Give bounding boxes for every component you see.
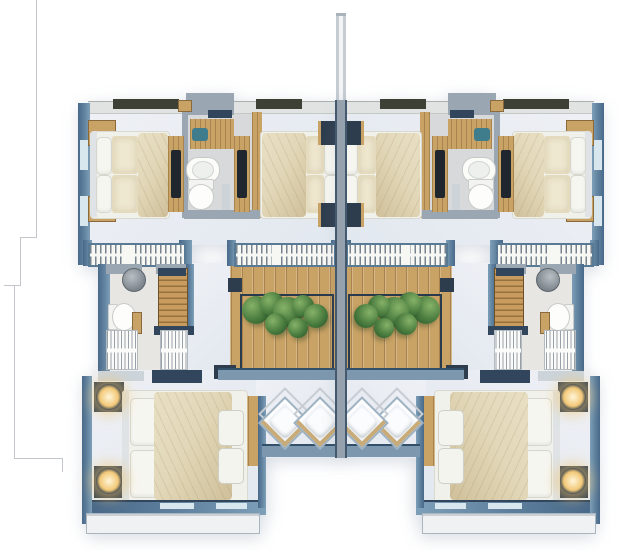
outer-wall-bottom [82,376,92,524]
bedroom-wall-top [98,371,144,381]
ac-unit [440,278,454,292]
vanity-basin [192,128,208,141]
balcony-railing [234,243,336,267]
folded-blanket [438,448,464,484]
dressing-stool [536,268,560,292]
wardrobe-door [435,150,445,198]
bed-duvet [138,133,168,217]
sideboard [152,370,202,383]
bed-duvet [376,133,420,217]
nightstand-lamp [96,384,122,410]
wardrobe-rack [544,330,576,370]
sideboard [480,370,530,383]
bed-duvet [154,392,232,500]
window [80,140,88,170]
parapet-wood-block [178,100,192,112]
unit-right [341,0,640,551]
staircase [494,268,524,330]
toilet-bowl [468,184,494,210]
window [216,503,247,509]
parapet-planter [256,99,302,109]
wardrobe-door [171,150,181,198]
central-party-wall [335,100,347,458]
vanity-basin [474,128,490,141]
bed-duvet [514,133,544,217]
sink-basin [192,161,214,179]
balcony-edge-rail [341,368,464,380]
unit-left [0,0,341,551]
planter-plant [265,313,287,335]
parapet-wood-block [490,100,504,112]
parapet-planter [503,99,569,109]
bed-pillow [96,175,112,213]
nightstand-lamp [560,468,586,494]
stairs-landing [158,268,186,276]
bed-cushion [544,175,570,213]
wardrobe-rack [160,330,188,370]
parapet-planter [380,99,426,109]
chair-cushion [345,406,379,440]
wardrobe-rack [106,330,138,370]
floor-plan [0,0,640,551]
window [594,140,602,170]
toilet-bowl [188,184,214,210]
ac-unit [228,278,242,292]
folded-blanket [218,410,244,446]
bed-headboard [122,390,129,502]
toilet-partition [222,184,230,210]
toilet-partition [452,184,460,210]
bed-headboard [553,390,560,502]
wardrobe-door [237,150,247,198]
bed-duvet [450,392,528,500]
bedroom-wall-top [538,371,584,381]
bed-pillow [570,137,586,175]
outer-wall-bottom [590,376,600,524]
window [435,503,466,509]
planter-plant [374,318,394,338]
balcony-railing [346,243,448,267]
wardrobe-rack [494,330,522,370]
bed-cushion [544,136,570,174]
shaft-vent [208,110,232,118]
bed-pillow [570,175,586,213]
folded-blanket [438,410,464,446]
parapet-planter [113,99,179,109]
nightstand-lamp [560,384,586,410]
bed-headboard [585,131,592,217]
chair-cushion [303,406,337,440]
terrace-rail [262,444,341,457]
folded-blanket [218,448,244,484]
bed-duvet [262,133,306,217]
terrace-rail [341,444,420,457]
window [594,196,602,226]
shaft-vent [450,110,474,118]
bed-pillow [524,398,552,446]
bed-cushion [112,136,138,174]
balcony-ledge [422,513,596,534]
staircase [158,268,188,330]
window [160,503,194,509]
balcony-edge-rail [218,368,341,380]
bed-pillow [524,450,552,498]
planter-plant [395,313,417,335]
bed-cushion [112,175,138,213]
window [80,196,88,226]
stairs-landing [496,268,524,276]
nightstand-lamp [96,468,122,494]
bed-pillow [96,137,112,175]
sink-basin [468,161,490,179]
window [488,503,522,509]
planter-plant [288,318,308,338]
dressing-stool [122,268,146,292]
wardrobe-door [501,150,511,198]
balcony-ledge [86,513,260,534]
